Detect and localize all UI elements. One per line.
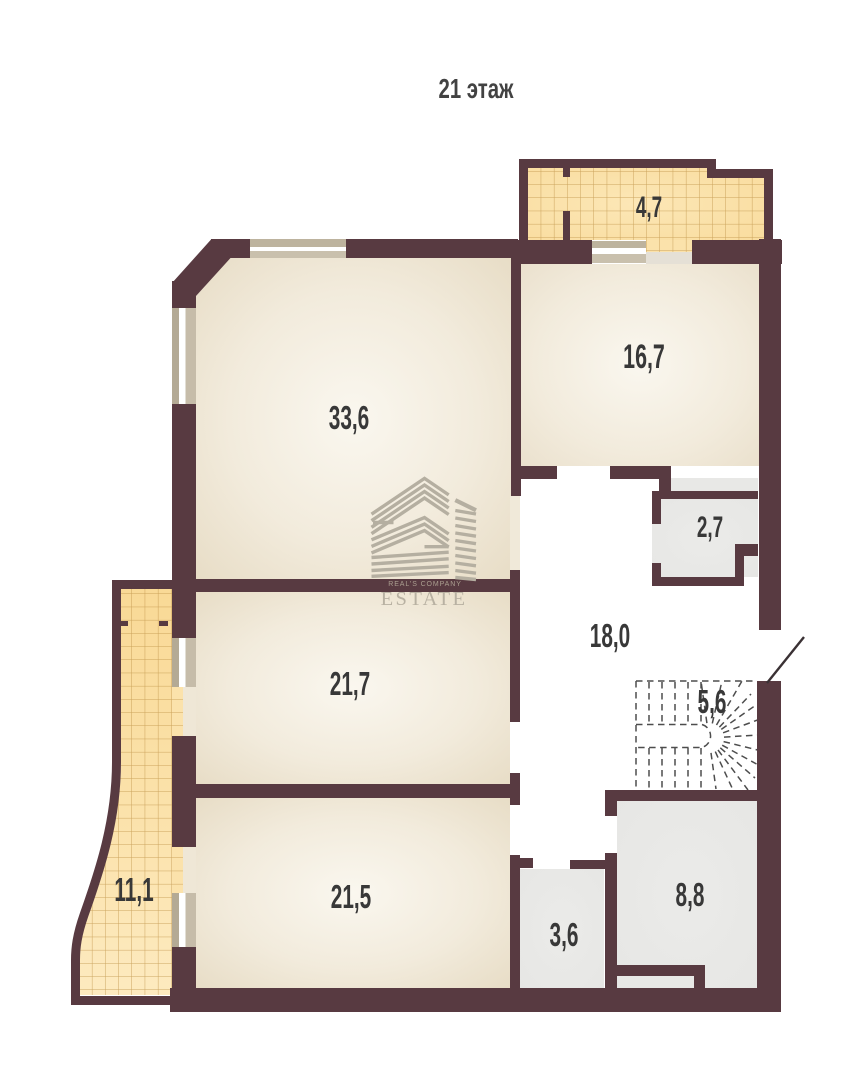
svg-text:16,7: 16,7 bbox=[623, 338, 665, 376]
svg-text:33,6: 33,6 bbox=[329, 399, 369, 436]
svg-text:3,6: 3,6 bbox=[550, 916, 579, 953]
svg-text:21,7: 21,7 bbox=[330, 665, 370, 702]
svg-text:11,1: 11,1 bbox=[114, 871, 153, 908]
svg-text:REAL’S COMPANY: REAL’S COMPANY bbox=[388, 581, 462, 588]
svg-text:2,7: 2,7 bbox=[697, 511, 723, 545]
svg-text:21 этаж: 21 этаж bbox=[439, 74, 515, 105]
svg-text:18,0: 18,0 bbox=[590, 617, 630, 654]
svg-text:4,7: 4,7 bbox=[636, 191, 662, 225]
svg-text:5,6: 5,6 bbox=[698, 683, 727, 720]
svg-text:8,8: 8,8 bbox=[676, 876, 705, 913]
svg-text:ESTATE: ESTATE bbox=[381, 588, 468, 610]
svg-text:21,5: 21,5 bbox=[331, 878, 371, 915]
